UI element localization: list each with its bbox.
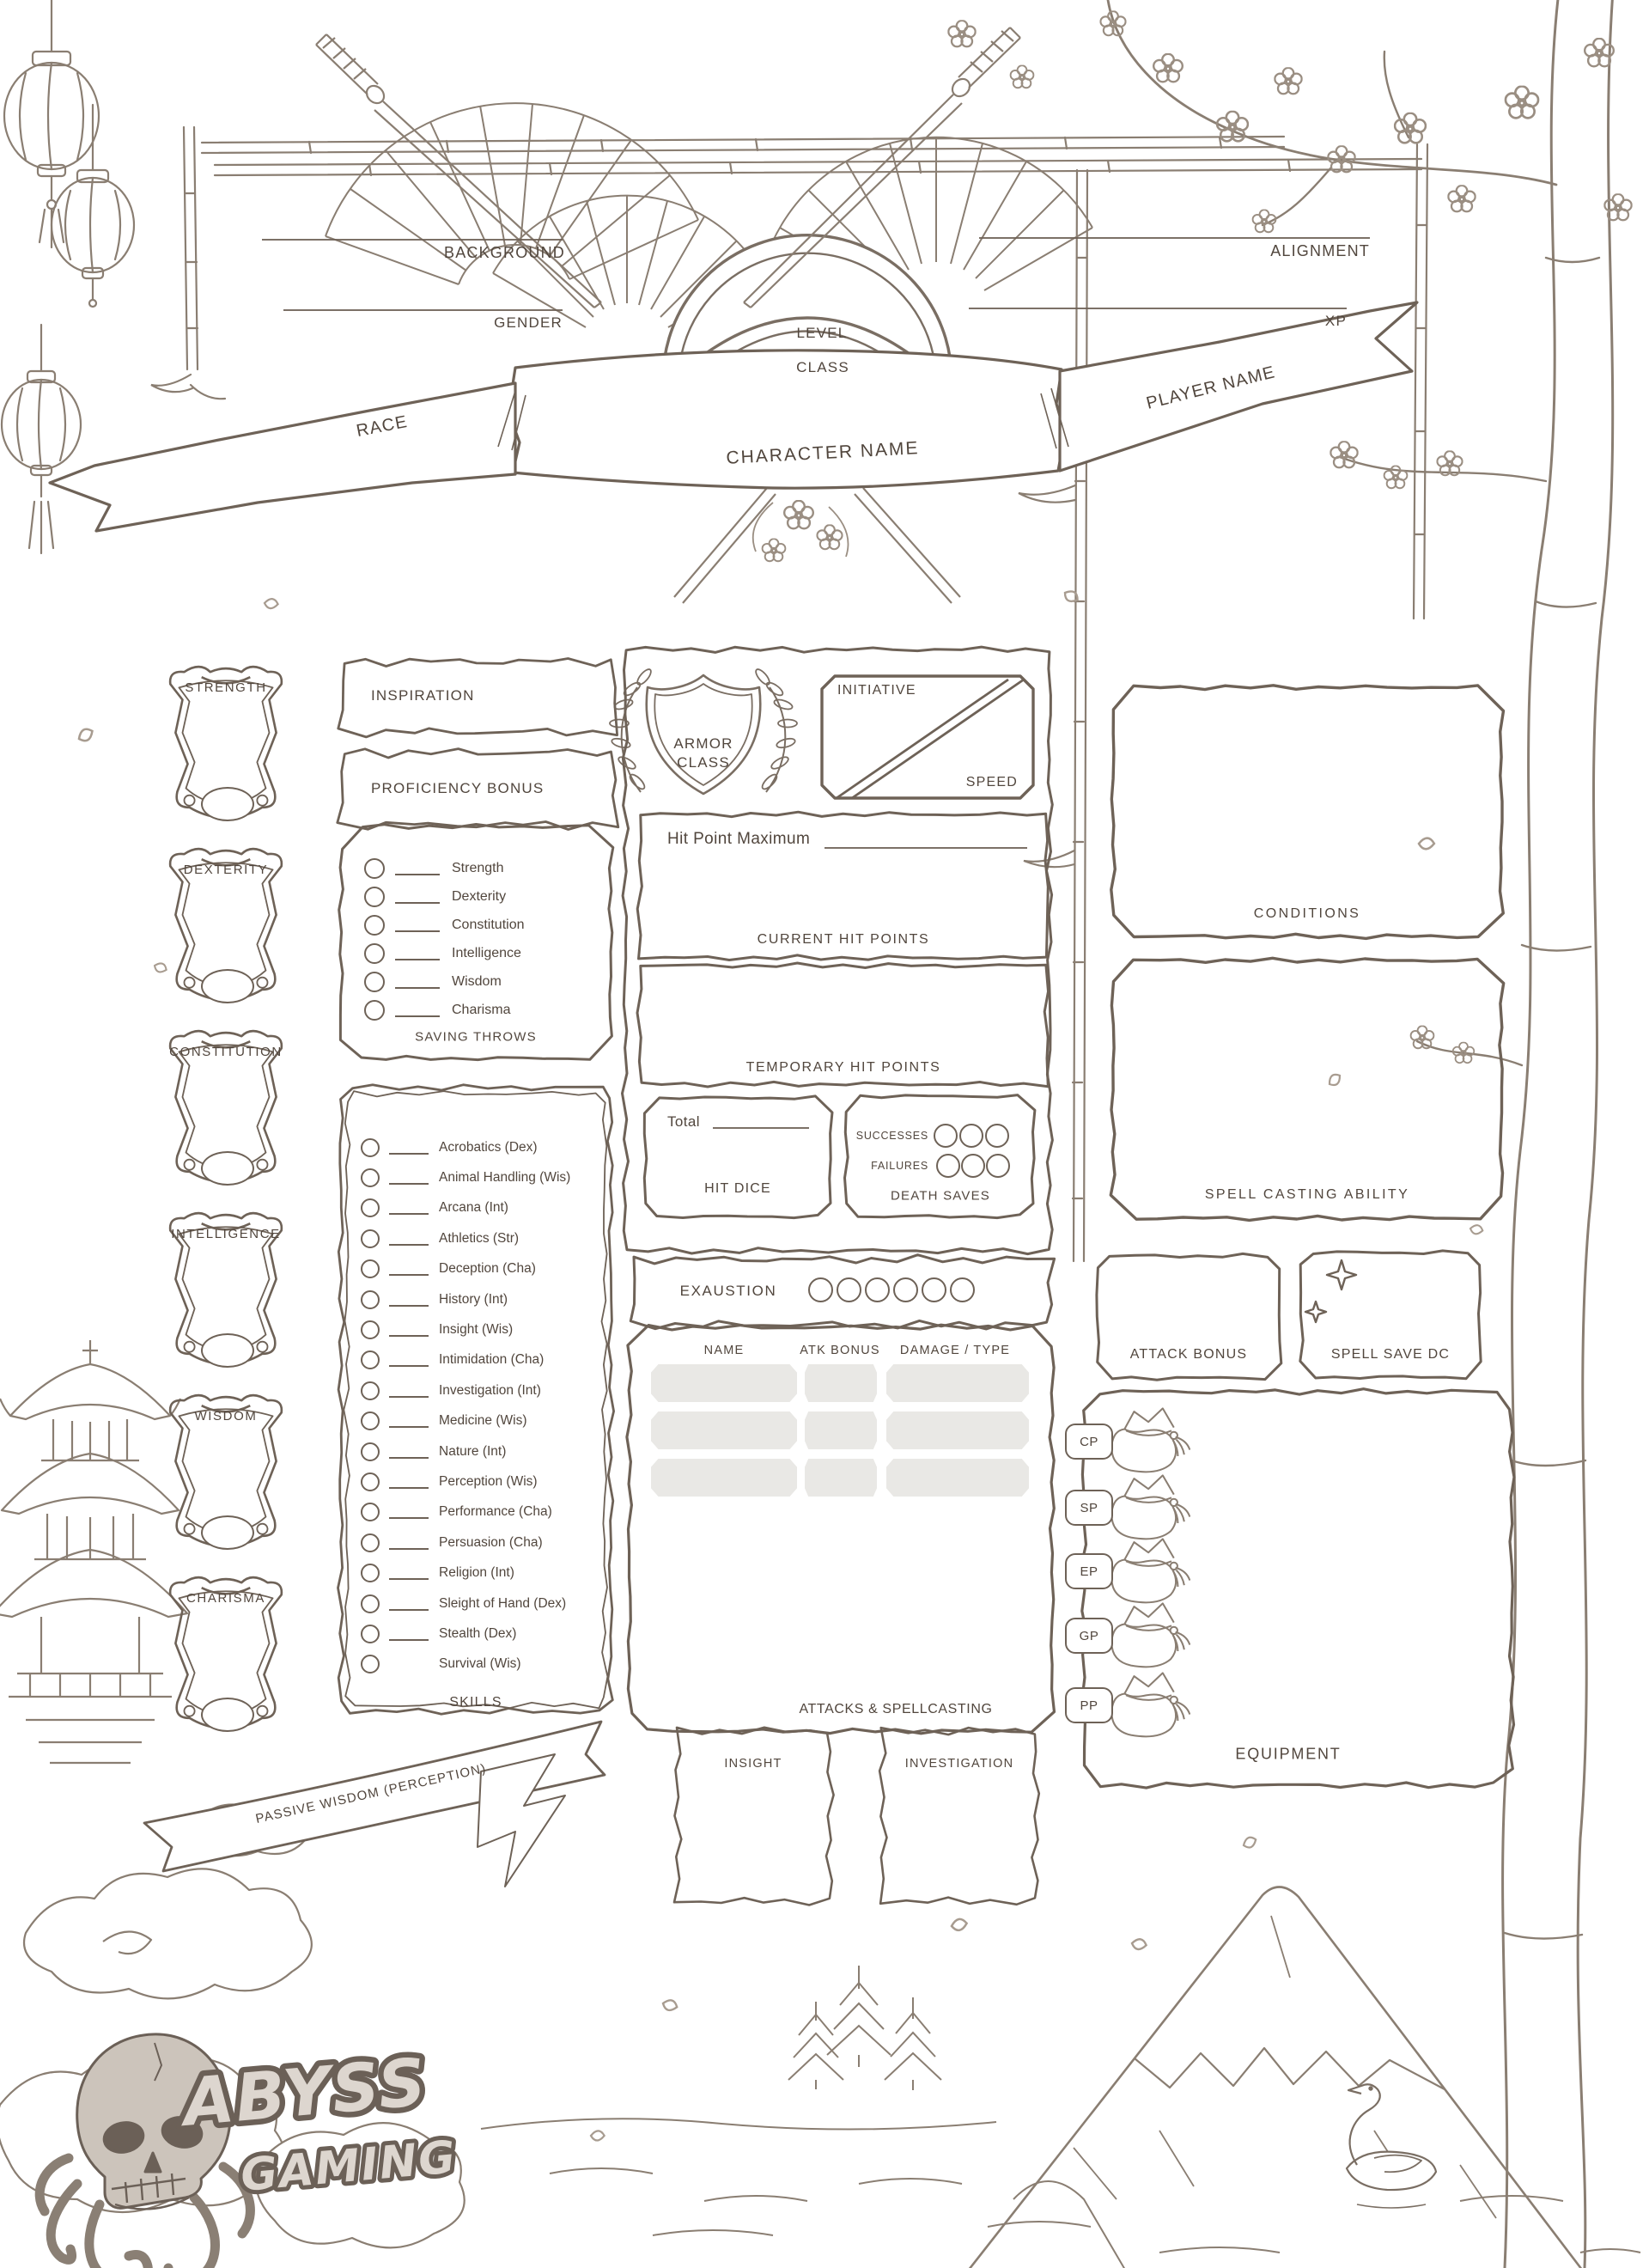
intelligence-modifier-oval[interactable] [201,1333,254,1368]
xp-label: XP [1325,313,1347,330]
skill-label: Investigation (Int) [439,1383,541,1399]
skill-proficiency-circle[interactable] [361,1198,380,1217]
skill-row: Perception (Wis) [361,1466,603,1497]
constitution-modifier-oval[interactable] [201,1151,254,1186]
death-saves-failures-label: FAILURES [871,1160,928,1172]
skill-modifier-line[interactable] [389,1657,429,1671]
saving-throw-row: Intelligence [364,939,596,967]
currency-tag-ep: EP [1065,1553,1113,1589]
skill-modifier-line[interactable] [389,1353,429,1367]
death-save-success-circle[interactable] [959,1124,983,1148]
saving-throw-label: Intelligence [452,946,521,961]
currency-label: GP [1080,1629,1099,1643]
saving-throw-modifier-line[interactable] [395,975,440,989]
exhaustion-circle[interactable] [950,1277,975,1302]
saving-throw-modifier-line[interactable] [395,1003,440,1017]
currency-tag-pp: PP [1065,1687,1113,1723]
player-name-value-area[interactable] [1228,335,1357,382]
skill-modifier-line[interactable] [389,1262,429,1276]
attack-name-cell[interactable] [651,1364,797,1402]
attack-damage-cell[interactable] [886,1411,1029,1449]
currency-tag-cp: CP [1065,1424,1113,1460]
hit-dice-box[interactable]: Total HIT DICE [645,1098,831,1216]
saving-throw-proficiency-circle[interactable] [364,915,385,936]
saving-throw-row: Constitution [364,911,596,939]
sp-value-area[interactable] [1211,1485,1469,1527]
level-label: LEVEL [797,325,848,342]
saving-throw-proficiency-circle[interactable] [364,943,385,964]
skill-proficiency-circle[interactable] [361,1472,380,1491]
exhaustion-circle[interactable] [922,1277,946,1302]
wisdom-score-area[interactable] [183,1438,269,1507]
skill-label: Deception (Cha) [439,1261,536,1277]
ability-label: WISDOM [155,1409,297,1424]
temporary-hit-points-box[interactable]: TEMPORARY HIT POINTS [640,966,1047,1084]
skills-title: SKILLS [449,1695,502,1710]
saving-throw-label: Wisdom [452,974,502,990]
inspiration-label: INSPIRATION [371,687,475,704]
skill-proficiency-circle[interactable] [361,1259,380,1278]
alignment-label: ALIGNMENT [1270,242,1370,260]
exhaustion-label: EXAUSTION [680,1283,777,1300]
attack-name-cell[interactable] [651,1459,797,1497]
attack-name-cell[interactable] [651,1411,797,1449]
attacks-col-name: NAME [704,1344,745,1357]
saving-throw-modifier-line[interactable] [395,862,440,875]
intelligence-score-area[interactable] [183,1256,269,1325]
skill-proficiency-circle[interactable] [361,1350,380,1369]
initiative-label: INITIATIVE [837,683,916,698]
skill-modifier-line[interactable] [389,1536,429,1550]
initiative-value-area[interactable] [829,706,923,788]
skill-row: Deception (Cha) [361,1254,603,1284]
skill-label: Sleight of Hand (Dex) [439,1596,566,1612]
hit-point-maximum-label: Hit Point Maximum [667,830,810,849]
ability-box-constitution: CONSTITUTION [155,1022,297,1187]
conditions-box[interactable]: CONDITIONS [1113,687,1501,936]
skill-label: Arcana (Int) [439,1200,508,1216]
saving-throw-label: Strength [452,861,503,876]
saving-throw-proficiency-circle[interactable] [364,1000,385,1021]
skill-modifier-line[interactable] [389,1627,429,1641]
passive-wisdom-value-area[interactable] [198,1847,481,1924]
saving-throw-label: Dexterity [452,889,506,905]
attack-bonus-cell[interactable] [805,1411,877,1449]
background-input-line[interactable] [262,239,563,241]
skill-modifier-line[interactable] [389,1323,429,1337]
ability-box-dexterity: DEXTERITY [155,840,297,1005]
skill-row: Acrobatics (Dex) [361,1132,603,1162]
attack-damage-cell[interactable] [886,1364,1029,1402]
pp-value-area[interactable] [1211,1683,1469,1724]
currency-label: SP [1080,1501,1098,1515]
strength-modifier-oval[interactable] [201,787,254,821]
armor-class-label-line2: CLASS [677,754,730,771]
swan-icon [1347,2084,1436,2208]
death-save-success-circle[interactable] [934,1124,958,1148]
saving-throw-row: Strength [364,854,596,882]
spell-casting-ability-label: SPELL CASTING ABILITY [1205,1187,1409,1203]
currency-label: PP [1080,1698,1098,1713]
skill-row: Insight (Wis) [361,1314,603,1344]
skill-modifier-line[interactable] [389,1384,429,1398]
level-value-area[interactable] [777,283,872,325]
xp-input-line[interactable] [969,308,1347,309]
skill-row: Survival (Wis) [361,1649,603,1680]
saving-throw-row: Charisma [364,996,596,1024]
charisma-score-area[interactable] [183,1620,269,1689]
charisma-modifier-oval[interactable] [201,1698,254,1732]
dexterity-modifier-oval[interactable] [201,969,254,1003]
skill-label: Perception (Wis) [439,1474,538,1490]
skill-row: Nature (Int) [361,1436,603,1466]
proficiency-bonus-box[interactable]: PROFICIENCY BONUS [342,753,615,825]
hit-point-maximum-line[interactable] [824,847,1027,849]
investigation-label: INVESTIGATION [905,1757,1014,1771]
investigation-box[interactable]: INVESTIGATION [883,1731,1036,1901]
race-value-area[interactable] [240,421,361,472]
skill-proficiency-circle[interactable] [361,1381,380,1400]
spell-save-dc-box[interactable]: SPELL SAVE DC [1301,1253,1480,1377]
ability-box-strength: STRENGTH [155,658,297,823]
death-save-failure-circle[interactable] [936,1154,960,1178]
skill-row: Athletics (Str) [361,1223,603,1253]
speed-value-area[interactable] [958,687,1031,760]
attacks-col-damage-type: DAMAGE / TYPE [900,1344,1010,1357]
skill-proficiency-circle[interactable] [361,1229,380,1248]
skills-list: Acrobatics (Dex) Animal Handling (Wis) A… [361,1132,603,1680]
character-sheet-page: ABYSS GAMING BACKGROUND GENDER ALIGNMENT… [0,0,1649,2268]
class-value-area[interactable] [769,344,880,364]
equipment-label: EQUIPMENT [1235,1746,1341,1764]
dexterity-score-area[interactable] [183,892,269,960]
mount-fuji [969,1887,1582,2268]
gender-input-line[interactable] [283,309,563,311]
hit-dice-total-line[interactable] [713,1127,809,1129]
attacks-col-atk-bonus: ATK BONUS [800,1344,880,1357]
skill-label: Performance (Cha) [439,1504,552,1520]
currency-label: EP [1080,1564,1098,1579]
saving-throw-modifier-line[interactable] [395,890,440,904]
attack-bonus-cell[interactable] [805,1459,877,1497]
wisdom-modifier-oval[interactable] [201,1515,254,1550]
exhaustion-circle[interactable] [865,1277,890,1302]
skill-label: Acrobatics (Dex) [439,1140,538,1155]
skill-label: Nature (Int) [439,1444,506,1460]
saving-throw-label: Constitution [452,918,525,933]
ability-label: CHARISMA [155,1591,297,1606]
skill-proficiency-circle[interactable] [361,1442,380,1461]
cp-value-area[interactable] [1211,1419,1469,1460]
skill-proficiency-circle[interactable] [361,1503,380,1521]
current-hit-points-box[interactable]: Hit Point Maximum CURRENT HIT POINTS [640,814,1047,958]
skill-label: Stealth (Dex) [439,1626,516,1642]
conditions-label: CONDITIONS [1254,906,1360,922]
hit-dice-title: HIT DICE [704,1181,771,1197]
attack-bonus-cell[interactable] [805,1364,877,1402]
skill-modifier-line[interactable] [389,1141,429,1155]
saving-throw-proficiency-circle[interactable] [364,858,385,879]
ep-value-area[interactable] [1211,1549,1469,1590]
attack-damage-cell[interactable] [886,1459,1029,1497]
skill-label: History (Int) [439,1292,508,1308]
currency-tag-gp: GP [1065,1618,1113,1654]
ability-label: DEXTERITY [155,863,297,877]
skill-modifier-line[interactable] [389,1293,429,1307]
skill-proficiency-circle[interactable] [361,1411,380,1430]
ability-label: CONSTITUTION [155,1045,297,1059]
saving-throw-label: Charisma [452,1003,510,1018]
skill-proficiency-circle[interactable] [361,1564,380,1582]
ability-box-wisdom: WISDOM [155,1387,297,1552]
skill-row: Sleight of Hand (Dex) [361,1588,603,1619]
character-name-value-area[interactable] [601,374,1031,438]
inspiration-box[interactable]: INSPIRATION [342,661,615,732]
skill-row: Medicine (Wis) [361,1406,603,1436]
skill-modifier-line[interactable] [389,1445,429,1459]
skill-label: Intimidation (Cha) [439,1352,544,1368]
skill-modifier-line[interactable] [389,1201,429,1215]
spell-save-dc-label: SPELL SAVE DC [1331,1347,1450,1363]
skill-modifier-line[interactable] [389,1566,429,1580]
pine-trees [788,1966,941,2090]
saving-throw-row: Wisdom [364,967,596,996]
saving-throw-proficiency-circle[interactable] [364,972,385,992]
skill-row: History (Int) [361,1284,603,1314]
skill-proficiency-circle[interactable] [361,1533,380,1552]
skill-row: Animal Handling (Wis) [361,1162,603,1192]
armor-class-value-area[interactable] [669,679,738,739]
skill-modifier-line[interactable] [389,1597,429,1611]
proficiency-bonus-label: PROFICIENCY BONUS [371,780,544,797]
pond-water [481,2119,1640,2253]
saving-throw-modifier-line[interactable] [395,918,440,932]
death-save-failure-circle[interactable] [986,1154,1010,1178]
speed-label: SPEED [966,775,1018,790]
attack-bonus-label: ATTACK BONUS [1130,1347,1248,1363]
ability-box-intelligence: INTELLIGENCE [155,1204,297,1369]
death-saves-successes-label: SUCCESSES [856,1130,928,1142]
hit-dice-total-label: Total [667,1113,700,1131]
insight-box[interactable]: INSIGHT [678,1731,830,1901]
strength-score-area[interactable] [183,710,269,778]
skill-modifier-line[interactable] [389,1232,429,1246]
skill-proficiency-circle[interactable] [361,1138,380,1157]
exhaustion-circle[interactable] [808,1277,833,1302]
skill-proficiency-circle[interactable] [361,1625,380,1643]
skill-label: Animal Handling (Wis) [439,1170,570,1186]
insight-label: INSIGHT [724,1757,782,1771]
gp-value-area[interactable] [1211,1613,1469,1655]
exhaustion-circle[interactable] [837,1277,861,1302]
skill-label: Survival (Wis) [439,1656,521,1672]
skill-label: Athletics (Str) [439,1231,519,1247]
attacks-title: ATTACKS & SPELLCASTING [799,1702,992,1717]
death-save-failure-circle[interactable] [961,1154,985,1178]
death-save-success-circle[interactable] [985,1124,1009,1148]
skill-row: Arcana (Int) [361,1193,603,1223]
ability-label: STRENGTH [155,680,297,695]
currency-tag-sp: SP [1065,1490,1113,1526]
skill-modifier-line[interactable] [389,1171,429,1185]
saving-throws-list: Strength Dexterity Constitution Intellig… [364,854,596,1024]
background-label: BACKGROUND [444,244,565,262]
skill-row: Investigation (Int) [361,1375,603,1405]
skill-modifier-line[interactable] [389,1505,429,1519]
skill-proficiency-circle[interactable] [361,1290,380,1309]
ability-label: INTELLIGENCE [155,1227,297,1241]
skill-row: Religion (Int) [361,1558,603,1588]
current-hit-points-label: CURRENT HIT POINTS [758,932,930,948]
skill-row: Performance (Cha) [361,1497,603,1527]
gender-label: GENDER [494,314,563,332]
attack-bonus-box[interactable]: ATTACK BONUS [1098,1256,1280,1378]
skill-row: Persuasion (Cha) [361,1527,603,1558]
skill-proficiency-circle[interactable] [361,1168,380,1187]
skill-label: Insight (Wis) [439,1322,513,1338]
skill-modifier-line[interactable] [389,1475,429,1489]
skill-label: Medicine (Wis) [439,1413,526,1429]
temporary-hit-points-label: TEMPORARY HIT POINTS [746,1060,941,1076]
skill-label: Religion (Int) [439,1565,514,1581]
skill-row: Intimidation (Cha) [361,1345,603,1375]
skill-row: Stealth (Dex) [361,1619,603,1649]
skill-proficiency-circle[interactable] [361,1594,380,1613]
currency-label: CP [1080,1435,1098,1449]
skill-proficiency-circle[interactable] [361,1320,380,1339]
cherry-sprig-icon [753,501,849,561]
skill-label: Persuasion (Cha) [439,1535,543,1551]
constitution-score-area[interactable] [183,1074,269,1143]
ability-box-charisma: CHARISMA [155,1569,297,1734]
skill-proficiency-circle[interactable] [361,1655,380,1674]
saving-throw-proficiency-circle[interactable] [364,887,385,907]
exhaustion-circle[interactable] [893,1277,918,1302]
saving-throw-row: Dexterity [364,882,596,911]
spell-casting-ability-box[interactable]: SPELL CASTING ABILITY [1113,960,1501,1218]
saving-throw-modifier-line[interactable] [395,947,440,960]
death-saves-title: DEATH SAVES [891,1189,990,1204]
alignment-input-line[interactable] [979,237,1370,239]
skill-modifier-line[interactable] [389,1414,429,1428]
saving-throws-title: SAVING THROWS [415,1030,537,1045]
